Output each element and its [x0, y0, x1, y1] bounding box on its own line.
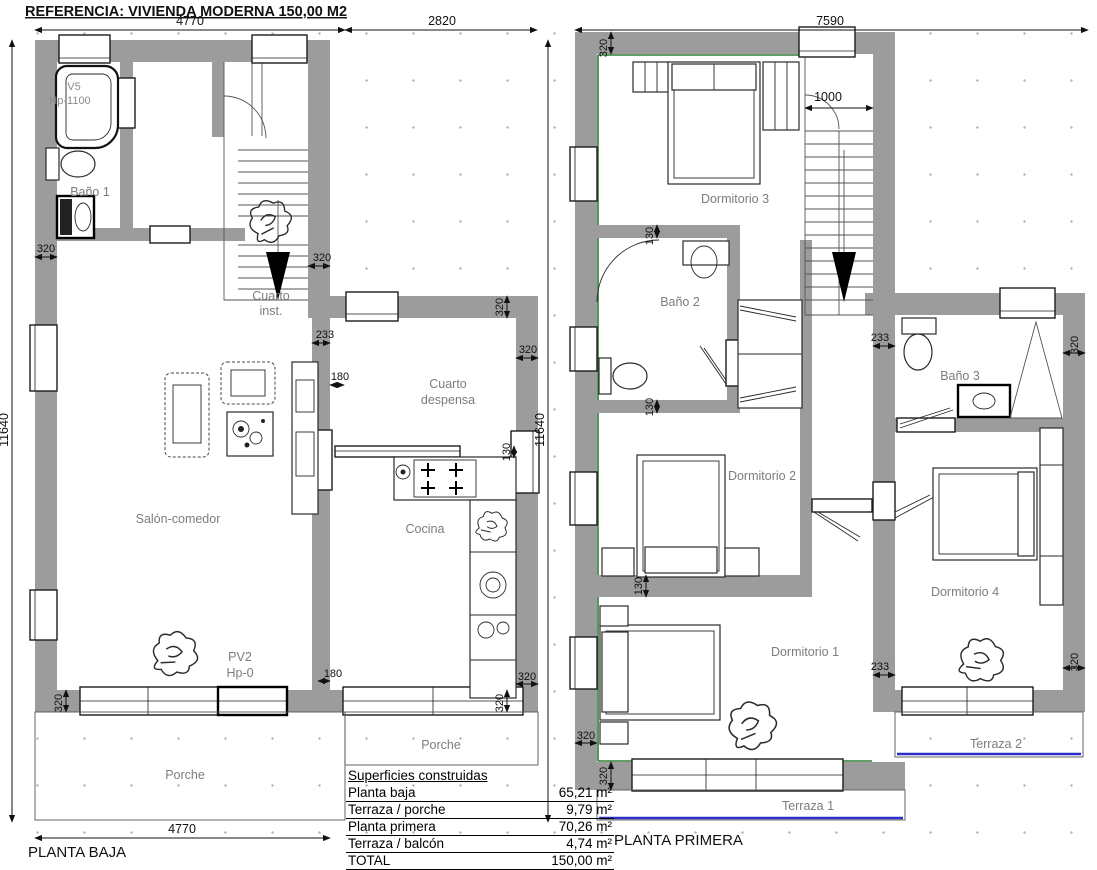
room-label-terraza1: Terraza 1	[782, 799, 834, 813]
patio-door-pv2	[80, 687, 287, 715]
sink-counter	[683, 241, 729, 265]
toilet	[61, 151, 95, 177]
dim-4770-top: 4770	[176, 14, 204, 28]
dim-11640-right: 11640	[533, 413, 547, 447]
bed-pillows	[1018, 472, 1034, 556]
plan-label-ground: PLANTA BAJA	[28, 844, 126, 861]
toilet	[904, 334, 932, 370]
dim-11640-left: 11640	[0, 413, 11, 447]
dim-320: 320	[313, 252, 331, 264]
area-label: TOTAL	[348, 853, 390, 868]
room-label-dormitorio4: Dormitorio 4	[931, 585, 999, 599]
window	[30, 325, 57, 391]
terrace2-sliding-door	[902, 687, 1033, 715]
area-value: 65,21 m²	[559, 785, 612, 800]
area-label: Planta baja	[348, 785, 416, 800]
room-label-cocina: Cocina	[406, 522, 445, 536]
room-label-salon: Salón-comedor	[136, 512, 221, 526]
room-label-despensa: Cuarto	[429, 377, 467, 391]
room-label-despensa2: despensa	[421, 393, 475, 407]
dim-233: 233	[316, 329, 334, 341]
dim-130: 130	[644, 398, 656, 416]
nightstand	[602, 548, 634, 576]
dim-320: 320	[494, 298, 506, 316]
areas-table-header: Superficies construidas	[346, 768, 614, 785]
bed-pillows	[602, 632, 628, 712]
window	[346, 292, 398, 321]
room-label-porche: Porche	[165, 768, 205, 782]
ground-floor-plan	[30, 35, 539, 820]
window	[252, 35, 307, 63]
area-value: 4,74 m²	[566, 836, 612, 851]
interior-door	[812, 499, 872, 512]
area-label: Terraza / porche	[348, 802, 446, 817]
area-value: 70,26 m²	[559, 819, 612, 834]
bed-pillows	[645, 547, 717, 573]
floor-plan-drawing: REFERENCIA: VIVIENDA MODERNA 150,00 M2 4…	[0, 0, 1097, 868]
room-label-dormitorio2: Dormitorio 2	[728, 469, 796, 483]
window-tag-hp1100: Hp-1100	[49, 95, 90, 107]
window	[799, 27, 855, 57]
room-label-cuarto-inst: Cuarto	[252, 289, 290, 303]
room-label-dormitorio3: Dormitorio 3	[701, 192, 769, 206]
dim-130: 130	[501, 443, 513, 461]
pantry-partition	[335, 446, 460, 457]
terrace1	[597, 790, 905, 820]
nightstand	[600, 606, 628, 626]
dim-233: 233	[871, 661, 889, 673]
window	[1000, 288, 1055, 318]
dim-180: 180	[324, 668, 342, 680]
plan-label-first: PLANTA PRIMERA	[614, 832, 743, 849]
area-value: 9,79 m²	[566, 802, 612, 817]
interior-door	[873, 482, 895, 520]
terrace1-sliding-door	[632, 759, 843, 791]
room-label-dormitorio1: Dormitorio 1	[771, 645, 839, 659]
table-row: Terraza / balcón 4,74 m²	[346, 836, 614, 853]
dim-2820-top: 2820	[428, 14, 456, 28]
window	[570, 147, 597, 201]
room-label-bano2: Baño 2	[660, 295, 700, 309]
toilet	[613, 363, 647, 389]
table-row: Terraza / porche 9,79 m²	[346, 802, 614, 819]
table-row: Planta baja 65,21 m²	[346, 785, 614, 802]
room-label-bano3: Baño 3	[940, 369, 980, 383]
area-value: 150,00 m²	[551, 853, 612, 868]
dim-320: 320	[494, 694, 506, 712]
door-tag-pv2: PV2	[228, 650, 252, 664]
dim-320: 320	[1069, 653, 1081, 671]
table-row: Planta primera 70,26 m²	[346, 819, 614, 836]
area-label: Planta primera	[348, 819, 436, 834]
interior-door	[150, 226, 190, 243]
table-row: TOTAL 150,00 m²	[346, 853, 614, 870]
room-label-terraza2: Terraza 2	[970, 737, 1022, 751]
toilet-tank	[902, 318, 936, 334]
dim-320: 320	[518, 671, 536, 683]
areas-table: Superficies construidas Planta baja 65,2…	[346, 768, 614, 870]
dim-320: 320	[1069, 336, 1081, 354]
bathtub	[56, 66, 118, 148]
dim-130: 130	[644, 227, 656, 245]
wardrobe	[763, 62, 799, 130]
room-label-bano1: Baño 1	[70, 185, 110, 199]
porch-main	[35, 712, 345, 820]
dim-180: 180	[331, 371, 349, 383]
first-floor-plan	[570, 27, 1085, 820]
area-label: Terraza / balcón	[348, 836, 444, 851]
nightstand	[725, 548, 759, 576]
interior-door	[897, 418, 955, 432]
room-label-porche2: Porche	[421, 738, 461, 752]
interior-door	[118, 78, 135, 128]
dim-1000-stairs: 1000	[814, 90, 842, 104]
toilet-tank	[599, 358, 611, 394]
wardrobe	[633, 62, 669, 92]
dim-320: 320	[37, 243, 55, 255]
window-tag-v5: V5	[67, 81, 80, 93]
door-tag-hp0: Hp-0	[226, 666, 253, 680]
dim-320: 320	[577, 730, 595, 742]
dim-4770-bottom: 4770	[168, 822, 196, 836]
coffee-table	[227, 412, 273, 456]
window	[59, 35, 110, 63]
sink-unit	[958, 385, 1010, 417]
window	[570, 327, 597, 371]
dim-130: 130	[633, 577, 645, 595]
toilet-tank	[46, 148, 59, 180]
dim-320: 320	[598, 39, 610, 57]
room-label-cuarto-inst2: inst.	[260, 304, 283, 318]
dim-320: 320	[519, 344, 537, 356]
window	[570, 472, 597, 525]
nightstand	[600, 722, 628, 744]
window	[570, 637, 597, 689]
wardrobe	[1040, 428, 1063, 605]
dim-320: 320	[53, 694, 65, 712]
dim-233: 233	[871, 332, 889, 344]
window	[30, 590, 57, 640]
dim-7590-top: 7590	[816, 14, 844, 28]
